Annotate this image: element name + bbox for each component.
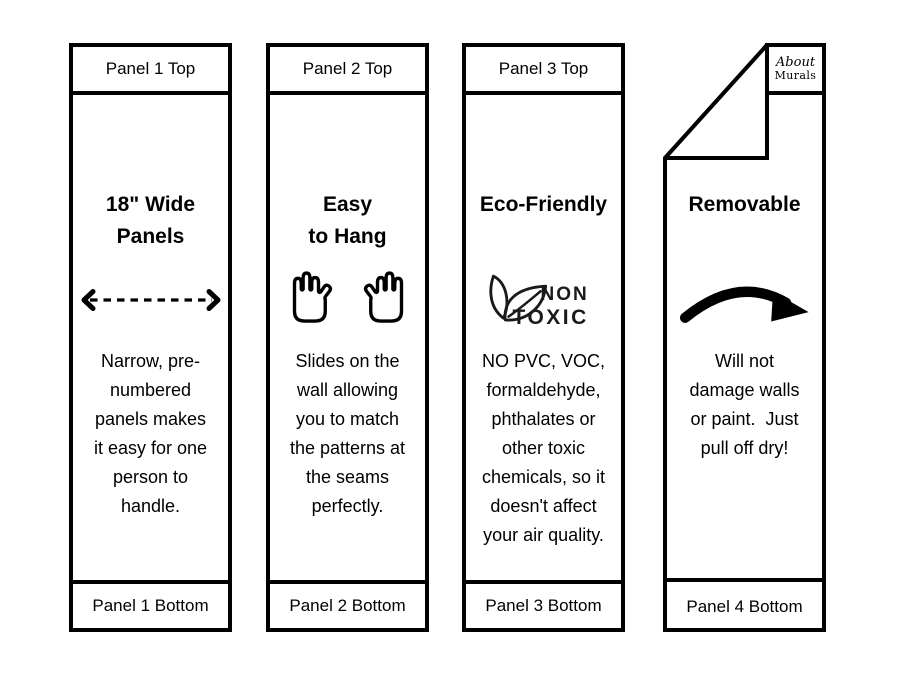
logo-text-about: About xyxy=(776,56,815,70)
panel-1-description: Narrow, pre- numbered panels makes it ea… xyxy=(75,347,226,521)
curved-peel-arrow-icon xyxy=(663,259,826,341)
logo-text-murals: Murals xyxy=(775,70,817,82)
left-hand-icon xyxy=(287,267,335,333)
panel-4-description: Will not damage walls or paint. Just pul… xyxy=(667,347,822,463)
folded-corner-flap xyxy=(665,45,767,158)
toxic-label: TOXIC xyxy=(513,306,589,330)
panel-1-title: 18" Wide Panels xyxy=(73,189,228,253)
panel-3-bottom-label: Panel 3 Bottom xyxy=(466,580,621,628)
panel-1-top-label: Panel 1 Top xyxy=(73,47,228,95)
non-toxic-leaf-icon: NON TOXIC xyxy=(466,259,621,341)
panel-4: About Murals Removable Will not damage w… xyxy=(663,43,826,632)
panel-4-title: Removable xyxy=(663,189,826,221)
panel-3: Panel 3 Top Eco-Friendly NON TOXIC NO PV… xyxy=(462,43,625,632)
wallpaper-panels-infographic: Panel 1 Top 18" Wide Panels Narrow, pre-… xyxy=(0,0,900,675)
aboutmurals-logo: About Murals xyxy=(767,47,824,91)
panel-3-title: Eco-Friendly xyxy=(466,189,621,221)
panel-3-description: NO PVC, VOC, formaldehyde, phthalates or… xyxy=(468,347,619,550)
panel-2-top-label: Panel 2 Top xyxy=(270,47,425,95)
panel-2-description: Slides on the wall allowing you to match… xyxy=(272,347,423,521)
non-label: NON xyxy=(541,284,589,306)
panel-4-bottom-label: Panel 4 Bottom xyxy=(667,584,822,630)
panel-3-top-label: Panel 3 Top xyxy=(466,47,621,95)
panel-1: Panel 1 Top 18" Wide Panels Narrow, pre-… xyxy=(69,43,232,632)
right-hand-icon xyxy=(361,267,409,333)
panel-2: Panel 2 Top Easy to Hang Slides on the w… xyxy=(266,43,429,632)
panel-1-bottom-label: Panel 1 Bottom xyxy=(73,580,228,628)
panel-2-bottom-label: Panel 2 Bottom xyxy=(270,580,425,628)
two-hands-icon xyxy=(270,259,425,341)
dashed-width-arrow-icon xyxy=(73,259,228,341)
panel-2-title: Easy to Hang xyxy=(270,189,425,253)
